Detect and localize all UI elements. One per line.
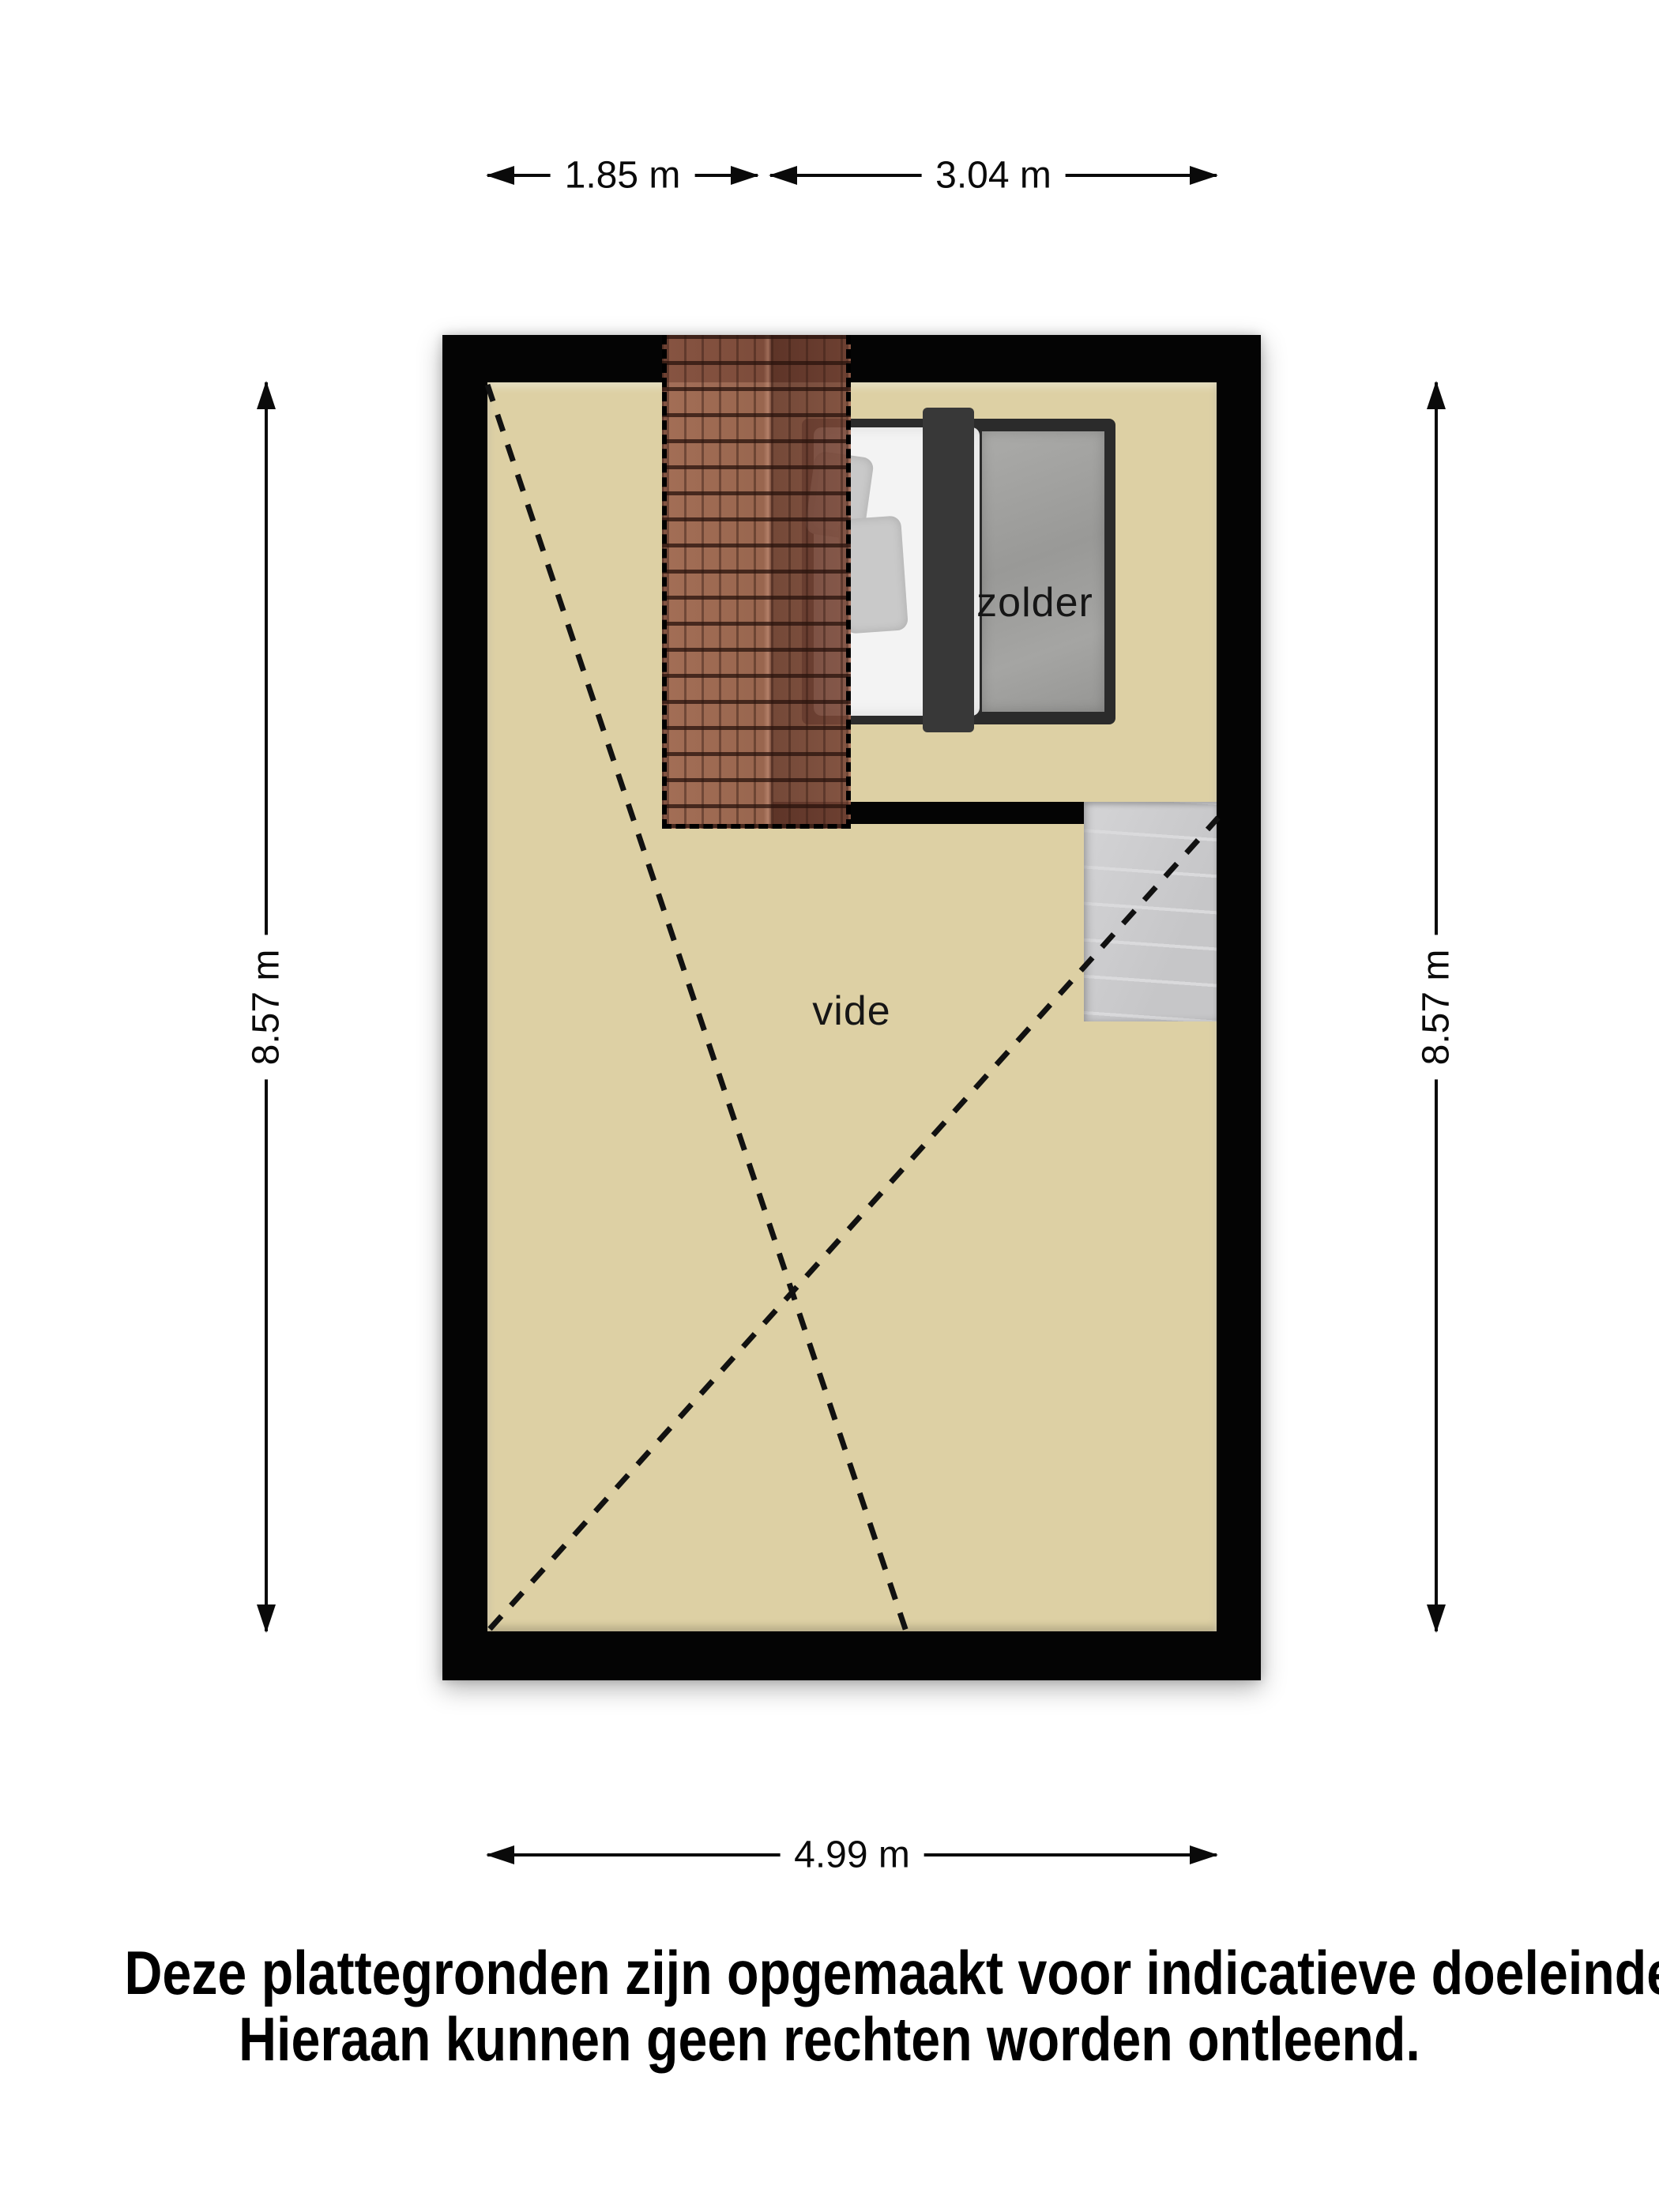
- arrowhead-left-icon: [486, 166, 514, 185]
- dimension-label: 1.85 m: [551, 154, 695, 197]
- floorplan-canvas: zolder vide: [442, 335, 1261, 1680]
- roof-overlay: [662, 335, 851, 829]
- arrowhead-down-icon: [257, 1604, 276, 1633]
- dimension-label: 4.99 m: [780, 1834, 924, 1877]
- arrowhead-right-icon: [1190, 166, 1218, 185]
- floorplan-page: 1.85 m 3.04 m 8.57 m 8.57 m 4.99 m: [0, 0, 1659, 2212]
- disclaimer: Deze plattegronden zijn opgemaakt voor i…: [0, 1939, 1659, 2072]
- arrowhead-right-icon: [731, 166, 759, 185]
- arrowhead-down-icon: [1427, 1604, 1446, 1633]
- dimension-label: 3.04 m: [921, 154, 1066, 197]
- slope-dashed-line: [490, 818, 1218, 1629]
- arrowhead-right-icon: [1190, 1845, 1218, 1864]
- disclaimer-line-2: Hieraan kunnen geen rechten worden ontle…: [125, 2006, 1535, 2072]
- dimension-label: 8.57 m: [245, 935, 288, 1079]
- disclaimer-line-1: Deze plattegronden zijn opgemaakt voor i…: [125, 1939, 1535, 2006]
- arrowhead-up-icon: [1427, 381, 1446, 409]
- arrowhead-left-icon: [769, 166, 797, 185]
- room-label-vide: vide: [812, 987, 890, 1035]
- arrowhead-up-icon: [257, 381, 276, 409]
- dimension-label: 8.57 m: [1415, 935, 1458, 1079]
- arrowhead-left-icon: [486, 1845, 514, 1864]
- room-label-zolder: zolder: [976, 579, 1093, 626]
